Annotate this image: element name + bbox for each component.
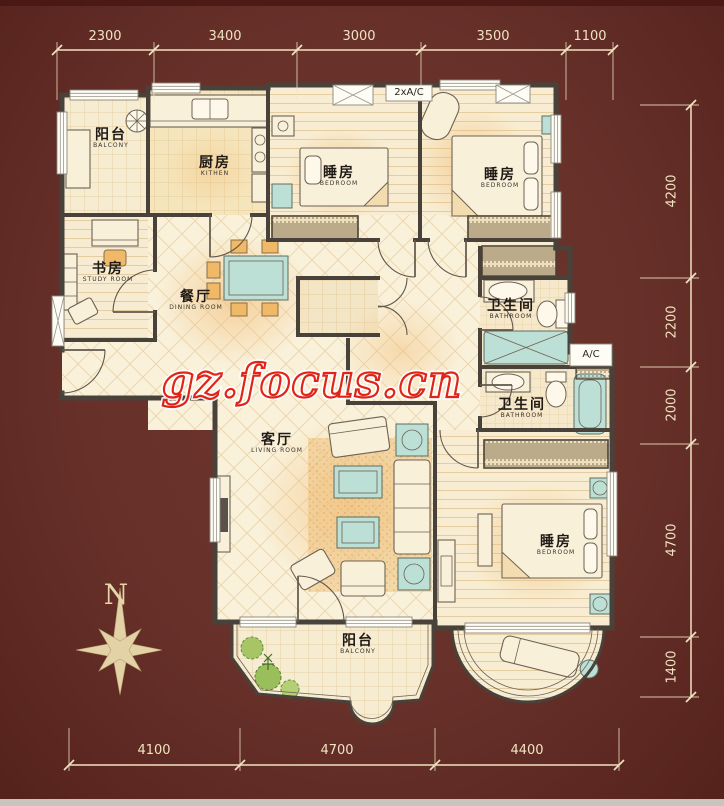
dim-top-3: 3000 xyxy=(342,29,375,44)
dim-top-5: 1100 xyxy=(573,29,606,44)
dim-top-2: 3400 xyxy=(208,29,241,44)
toilet-bowl xyxy=(537,301,557,327)
room-label-bathroom-upper: 卫生间BATHROOM xyxy=(487,299,535,320)
floorplan-drawing: gz.focus.cn gz.focus.cn xyxy=(0,0,724,806)
watermark-text: gz.focus.cn xyxy=(162,354,463,408)
room-label-bedroom-top-middle: 睡房BEDROOM xyxy=(320,166,358,187)
balcony-bench xyxy=(66,130,90,188)
watermark: gz.focus.cn gz.focus.cn xyxy=(162,354,463,408)
north-label: N xyxy=(104,578,129,611)
toilet-bowl xyxy=(546,381,566,407)
armchair-2 xyxy=(341,561,385,596)
sink xyxy=(492,374,524,390)
room-label-dining: 餐厅DINING ROOM xyxy=(169,290,222,311)
dim-right-1: 4200 xyxy=(665,174,680,207)
ac-platform xyxy=(576,367,610,379)
nightstand xyxy=(272,116,294,136)
armchair xyxy=(328,416,390,458)
bench xyxy=(478,514,492,566)
dim-top-1: 2300 xyxy=(88,29,121,44)
room-label-balcony-bottom: 阳台BALCONY xyxy=(340,634,376,655)
floorplan-page: gz.focus.cn gz.focus.cn 阳台BALCONY 厨房KITH… xyxy=(0,0,724,806)
dim-right-2: 2200 xyxy=(665,305,680,338)
room-label-living: 客厅LIVING ROOM xyxy=(251,433,303,454)
dim-right-4: 4700 xyxy=(665,523,680,556)
dining-table xyxy=(224,256,288,300)
dim-right-5: 1400 xyxy=(665,650,680,683)
study-desk xyxy=(92,220,138,246)
room-label-kitchen: 厨房KITHEN xyxy=(199,156,231,177)
scan-edge-bottom xyxy=(0,799,724,806)
dim-right-3: 2000 xyxy=(665,388,680,421)
dim-bottom-2: 4700 xyxy=(320,743,353,758)
room-label-bathroom-lower: 卫生间BATHROOM xyxy=(498,398,546,419)
scan-edge-top xyxy=(0,0,724,6)
ac-label-top: 2xA/C xyxy=(394,87,423,98)
room-label-study: 书房STUDY ROOM xyxy=(83,262,134,283)
room-label-bedroom-bottom-right: 睡房BEDROOM xyxy=(537,535,575,556)
dim-bottom-3: 4400 xyxy=(510,743,543,758)
dim-top-4: 3500 xyxy=(476,29,509,44)
room-label-balcony-top-left: 阳台BALCONY xyxy=(93,128,129,149)
dresser xyxy=(438,540,455,602)
ac-label-right: A/C xyxy=(582,349,599,360)
lamp-table-2 xyxy=(398,558,430,590)
dim-bottom-1: 4100 xyxy=(137,743,170,758)
room-label-bedroom-top-right: 睡房BEDROOM xyxy=(481,168,519,189)
sofa xyxy=(394,460,430,554)
lamp-table xyxy=(396,424,428,456)
